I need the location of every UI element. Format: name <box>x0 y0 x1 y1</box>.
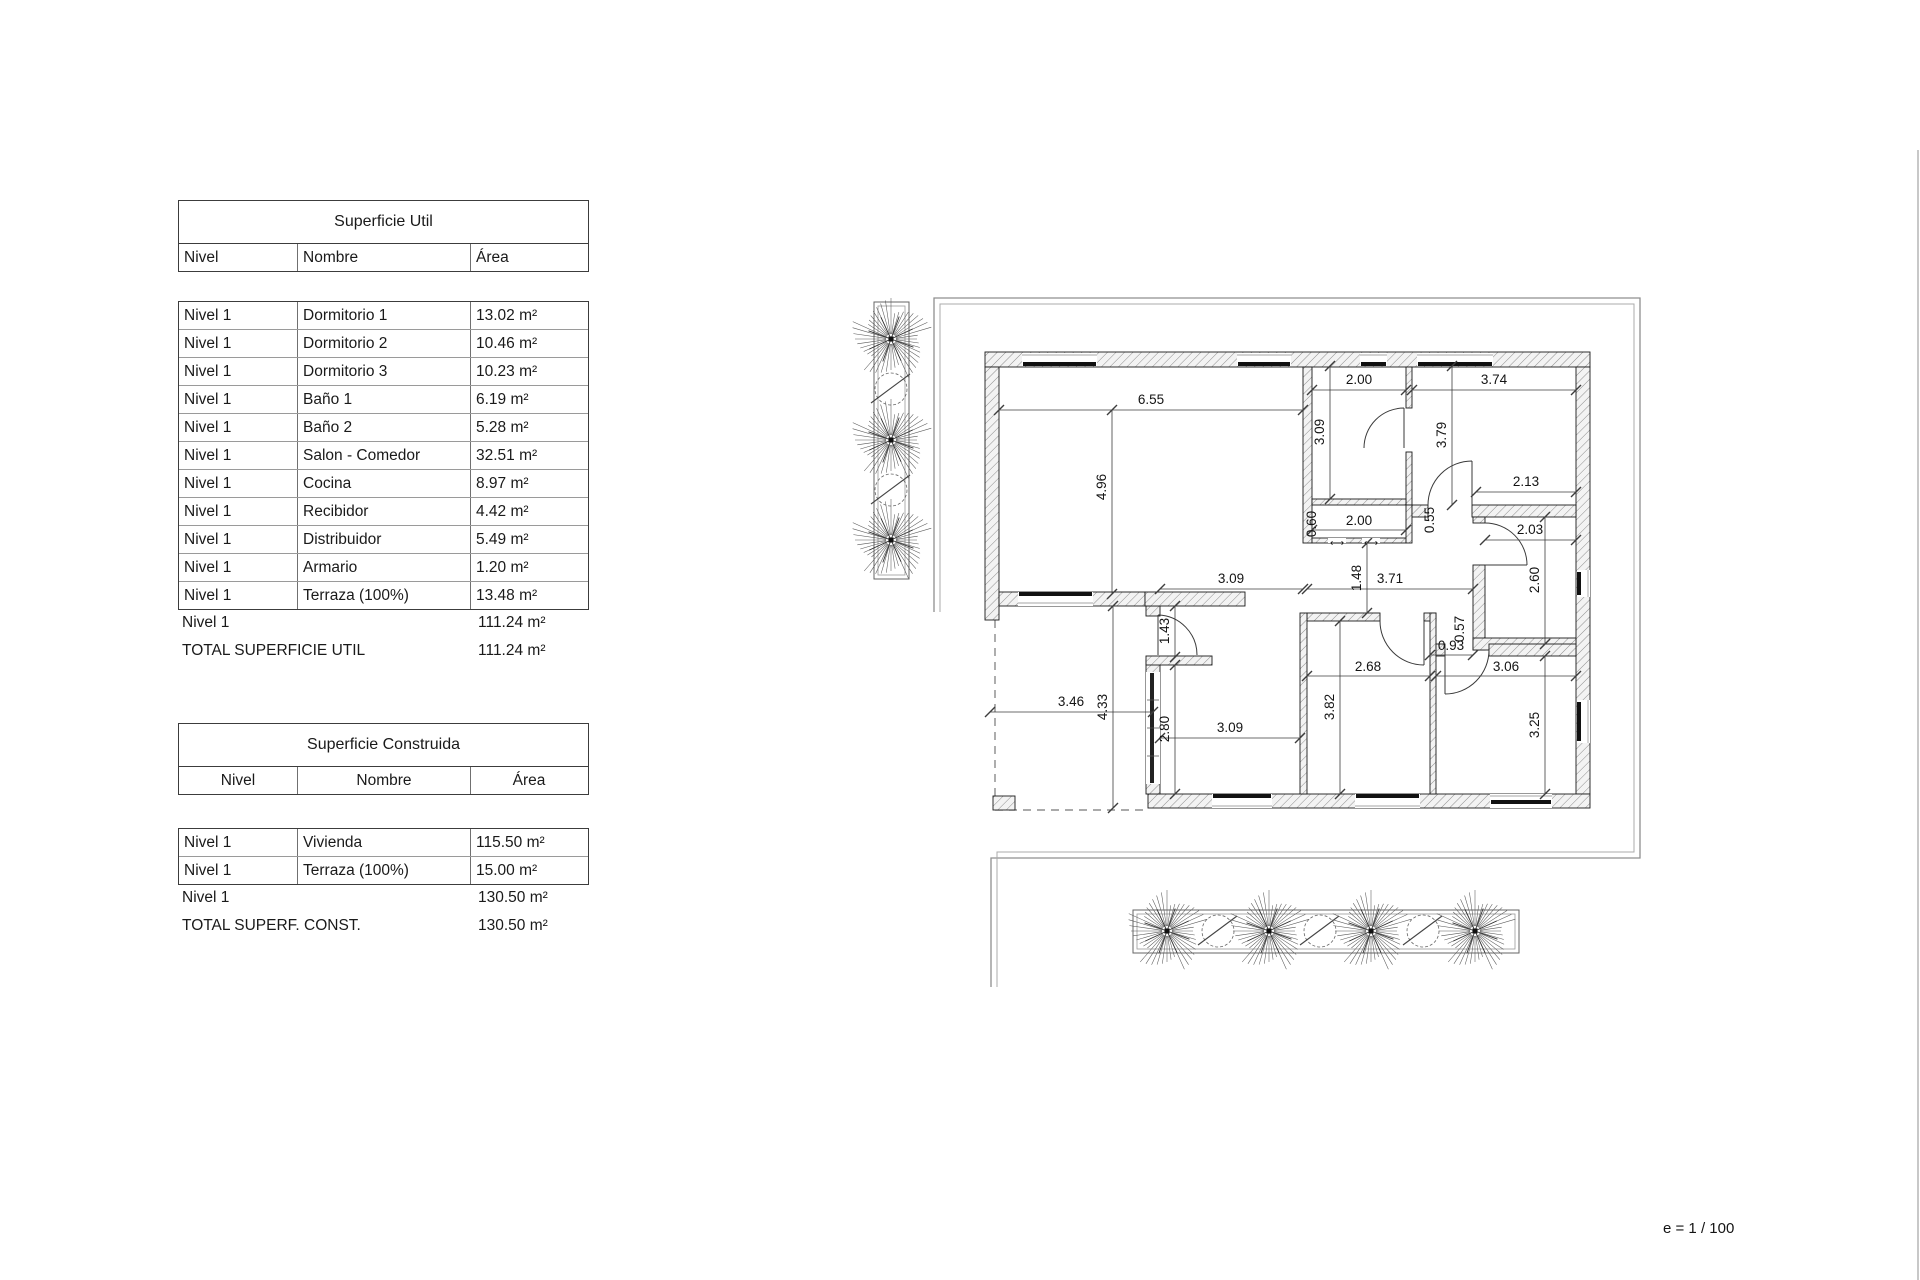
window <box>1018 592 1093 606</box>
dim-label: 0.57 <box>1452 616 1467 642</box>
bush-icon <box>871 373 910 405</box>
dim-label: 1.43 <box>1157 618 1172 644</box>
dimension-lines <box>985 361 1581 813</box>
dim-label: 2.00 <box>1346 513 1372 528</box>
tree-icon <box>1437 890 1516 969</box>
wall-bath1-east-b <box>1406 452 1412 505</box>
planter-south <box>1129 890 1519 969</box>
wall-dorm3-dorm2 <box>1430 613 1436 794</box>
bush-icon <box>871 474 910 506</box>
dorm1-door <box>1428 461 1472 505</box>
dim-label: 3.06 <box>1493 659 1519 674</box>
bath1-door <box>1364 408 1404 448</box>
window <box>1237 353 1291 366</box>
floor-plan: ⟷ ⟷ 6.55 2.00 3.74 2.00 2.13 2.03 3.09 3… <box>0 0 1920 1280</box>
dim-label: 3.09 <box>1312 419 1327 445</box>
window <box>1355 794 1420 808</box>
wall-armario-south <box>1312 538 1406 543</box>
window <box>1212 794 1272 808</box>
wall-dorm1-south-b <box>1472 505 1576 517</box>
dim-label: 2.00 <box>1346 372 1372 387</box>
dim-label: 3.09 <box>1218 571 1244 586</box>
dim-label: 2.60 <box>1527 567 1542 593</box>
wall-armario-east <box>1406 505 1412 543</box>
dim-label: 3.71 <box>1377 571 1403 586</box>
dim-label: 4.96 <box>1094 474 1109 500</box>
tree-icon <box>853 499 932 578</box>
dim-label: 0.60 <box>1304 511 1319 537</box>
dorm2-door <box>1445 650 1489 694</box>
wall-west <box>985 367 999 620</box>
drawing-sheet: Superficie Util Nivel Nombre Área Nivel … <box>0 0 1920 1280</box>
wall-bath2-west-b <box>1473 565 1485 650</box>
tree-icon <box>1129 890 1208 969</box>
wall-dorm2-north-b <box>1489 644 1576 656</box>
dim-label: 2.13 <box>1513 474 1539 489</box>
planter-west <box>853 298 932 579</box>
dorm3-door <box>1380 621 1424 665</box>
dim-label: 6.55 <box>1138 392 1164 407</box>
window <box>1022 353 1097 366</box>
dim-label: 2.80 <box>1157 716 1172 742</box>
dim-label: 3.74 <box>1481 372 1508 387</box>
terrace-dashed-boundary <box>995 620 1148 810</box>
tree-icon <box>853 298 932 377</box>
sliding-door-icon: ⟷ <box>1330 538 1344 549</box>
walls <box>985 352 1590 810</box>
window <box>1360 353 1387 366</box>
window <box>1417 353 1493 366</box>
porch-corner-stub <box>993 796 1015 810</box>
dim-label: 2.68 <box>1355 659 1381 674</box>
tree-icon <box>1333 890 1412 969</box>
window <box>1577 700 1590 743</box>
tree-icon <box>1231 890 1310 969</box>
tree-icon <box>853 399 932 478</box>
dim-label: 2.03 <box>1517 522 1543 537</box>
wall-recibidor-north <box>1145 592 1245 606</box>
dim-label: 3.25 <box>1527 712 1542 738</box>
wall-cocina-dorm3 <box>1300 613 1307 794</box>
dim-label: 4.33 <box>1095 694 1110 720</box>
wall-entry-stub <box>1146 606 1160 616</box>
dim-label: 1.48 <box>1349 565 1364 591</box>
wall-bath2-west-a <box>1473 517 1485 523</box>
dim-label: 3.46 <box>1058 694 1084 709</box>
dim-label: 3.79 <box>1434 422 1449 448</box>
dim-label: 0.55 <box>1422 507 1437 533</box>
scale-note: e = 1 / 100 <box>1663 1220 1734 1237</box>
dim-label: 3.82 <box>1322 694 1337 720</box>
dim-label: 3.09 <box>1217 720 1243 735</box>
window <box>1577 570 1590 597</box>
doors <box>1158 408 1527 694</box>
